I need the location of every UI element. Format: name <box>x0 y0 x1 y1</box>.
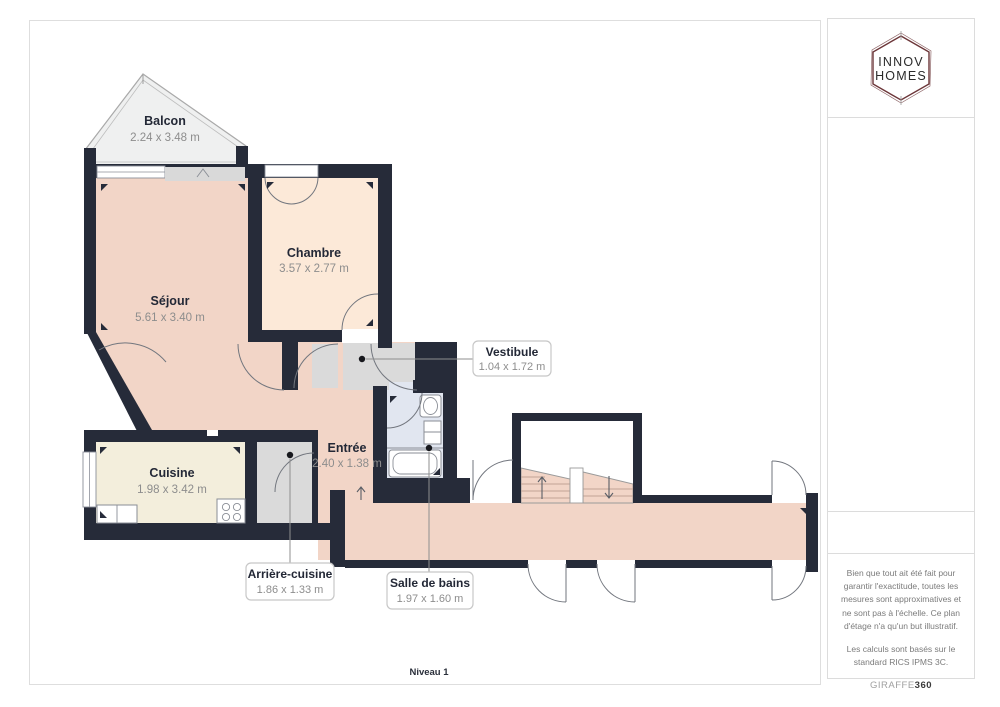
salle-de-bains-anchor-dot <box>426 445 432 451</box>
sejour-dims: 5.61 x 3.40 m <box>135 312 205 324</box>
toilet <box>424 421 441 444</box>
chambre-window <box>265 165 318 177</box>
sejour-label: Séjour <box>151 294 190 308</box>
giraffe360-brand: GIRAFFE360 <box>836 679 966 694</box>
balcon-label: Balcon <box>144 114 186 128</box>
arriere-cuisine-anchor-dot <box>287 452 293 458</box>
balcony-door-threshold <box>165 167 245 181</box>
corridor-door-arc-2 <box>597 564 635 602</box>
brand-bold: 360 <box>915 680 932 691</box>
level-label: Niveau 1 <box>409 667 449 678</box>
logo-line1: INNOV <box>878 55 924 69</box>
innov-homes-logo: INNOV HOMES <box>846 31 956 117</box>
info-sidebar: INNOV HOMES Bien que tout ait été fait p… <box>827 18 975 679</box>
logo-section: INNOV HOMES <box>828 19 974 118</box>
salle-de-bains-dims: 1.97 x 1.60 m <box>397 593 464 605</box>
disclaimer-paragraph-1: Bien que tout ait été fait pour garantir… <box>836 567 966 633</box>
arriere-cuisine-dims: 1.86 x 1.33 m <box>257 584 324 596</box>
vestibule-dims: 1.04 x 1.72 m <box>479 361 546 373</box>
balcon-dims: 2.24 x 3.48 m <box>130 132 200 144</box>
cuisine-label: Cuisine <box>149 466 194 480</box>
entree-label: Entrée <box>328 441 367 455</box>
corridor-door-arc-1 <box>528 564 566 602</box>
sidebar-divider-2 <box>828 553 974 554</box>
vestibule-label: Vestibule <box>486 345 539 359</box>
salle-de-bains-label: Salle de bains <box>390 576 470 590</box>
sidebar-divider-1 <box>828 511 974 512</box>
disclaimer-text: Bien que tout ait été fait pour garantir… <box>836 567 966 694</box>
stove <box>217 499 245 523</box>
staircase <box>521 468 633 503</box>
entree-dims: 2.40 x 1.38 m <box>312 458 382 470</box>
vestibule-anchor-dot <box>359 356 365 362</box>
floorplan-page: Vestibule 1.04 x 1.72 m Arrière-cuisine … <box>0 0 1000 707</box>
corridor-end-door-top-arc <box>772 461 806 495</box>
cuisine-dims: 1.98 x 3.42 m <box>137 484 207 496</box>
brand-light: GIRAFFE <box>870 680 915 691</box>
disclaimer-paragraph-2: Les calculs sont basés sur le standard R… <box>836 643 966 669</box>
logo-line2: HOMES <box>875 69 927 83</box>
chambre-label: Chambre <box>287 246 341 260</box>
chambre-dims: 3.57 x 2.77 m <box>279 263 349 275</box>
callout-arriere-cuisine: Arrière-cuisine 1.86 x 1.33 m <box>246 563 334 600</box>
arriere-cuisine-label: Arrière-cuisine <box>248 567 333 581</box>
corridor-end-door-bottom-arc <box>772 566 806 600</box>
callout-salle-de-bains: Salle de bains 1.97 x 1.60 m <box>387 572 473 609</box>
corridor-left-door-arc <box>473 460 513 500</box>
callout-vestibule: Vestibule 1.04 x 1.72 m <box>473 341 551 376</box>
